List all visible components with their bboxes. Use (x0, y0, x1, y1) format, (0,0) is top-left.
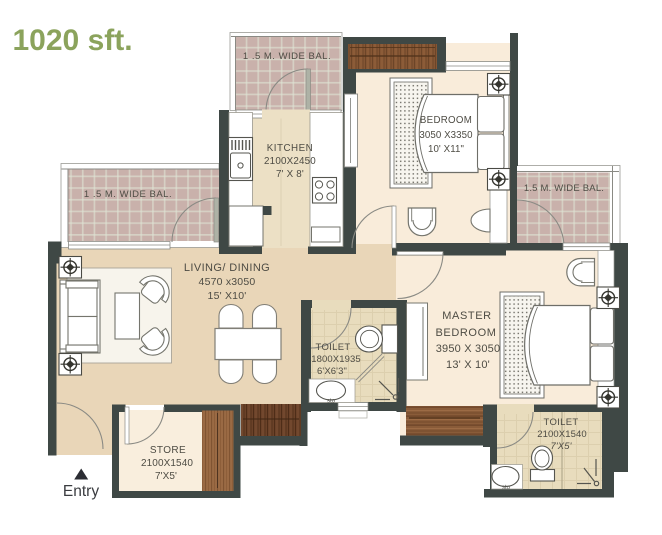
svg-text:2100X1540: 2100X1540 (141, 458, 193, 469)
svg-text:7'X5': 7'X5' (550, 441, 572, 452)
svg-text:TOILET: TOILET (544, 417, 579, 428)
svg-text:LIVING/ DINING: LIVING/ DINING (184, 262, 270, 274)
svg-text:1 .5 M. WIDE BAL.: 1 .5 M. WIDE BAL. (84, 189, 172, 200)
svg-text:1020 sft.: 1020 sft. (13, 24, 133, 57)
svg-text:Entry: Entry (63, 483, 99, 500)
svg-text:TOILET: TOILET (316, 342, 351, 353)
svg-text:sto: sto (327, 399, 336, 405)
svg-text:10' X11": 10' X11" (428, 144, 465, 155)
svg-text:MASTER: MASTER (442, 310, 491, 322)
svg-text:1 .5 M. WIDE BAL.: 1 .5 M. WIDE BAL. (243, 51, 331, 62)
svg-text:3950 X 3050: 3950 X 3050 (436, 343, 501, 355)
svg-text:4570 x3050: 4570 x3050 (199, 276, 256, 288)
svg-text:7' X 8': 7' X 8' (276, 169, 304, 180)
svg-text:2100X1540: 2100X1540 (537, 429, 587, 440)
svg-text:13' X 10': 13' X 10' (446, 359, 490, 371)
svg-text:3050 X3350: 3050 X3350 (419, 130, 473, 141)
svg-text:STORE: STORE (150, 445, 186, 456)
svg-text:15' X10': 15' X10' (208, 290, 247, 302)
svg-text:KITCHEN: KITCHEN (267, 143, 314, 154)
svg-text:1800X1935: 1800X1935 (311, 354, 361, 365)
svg-text:BEDROOM: BEDROOM (435, 327, 496, 339)
svg-text:2100X2450: 2100X2450 (264, 156, 316, 167)
svg-text:sto: sto (502, 485, 511, 491)
svg-text:1.5 M. WIDE BAL.: 1.5 M. WIDE BAL. (524, 183, 604, 194)
svg-text:7'X5': 7'X5' (155, 471, 177, 482)
svg-text:BEDROOM: BEDROOM (420, 115, 472, 126)
svg-text:6'X6'3": 6'X6'3" (317, 366, 347, 377)
